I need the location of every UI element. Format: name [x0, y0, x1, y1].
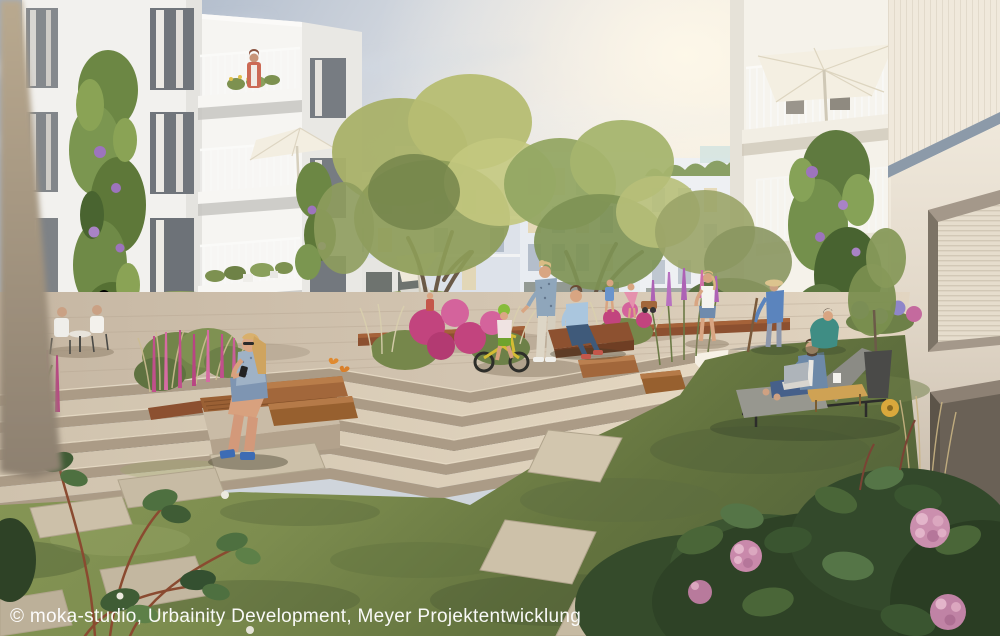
photo-credit-caption: © moka-studio, Urbainity Development, Me… — [10, 606, 581, 628]
balcony-top — [198, 48, 302, 120]
tree-canopy-left-sliver — [314, 182, 374, 274]
shuttered-window — [928, 190, 1000, 352]
rendering-canvas — [0, 0, 1000, 636]
coffee-mug — [833, 373, 841, 383]
courtyard-rendering: © moka-studio, Urbainity Development, Me… — [0, 0, 1000, 636]
balcony-resident — [247, 49, 261, 88]
straw-hat — [765, 280, 783, 287]
